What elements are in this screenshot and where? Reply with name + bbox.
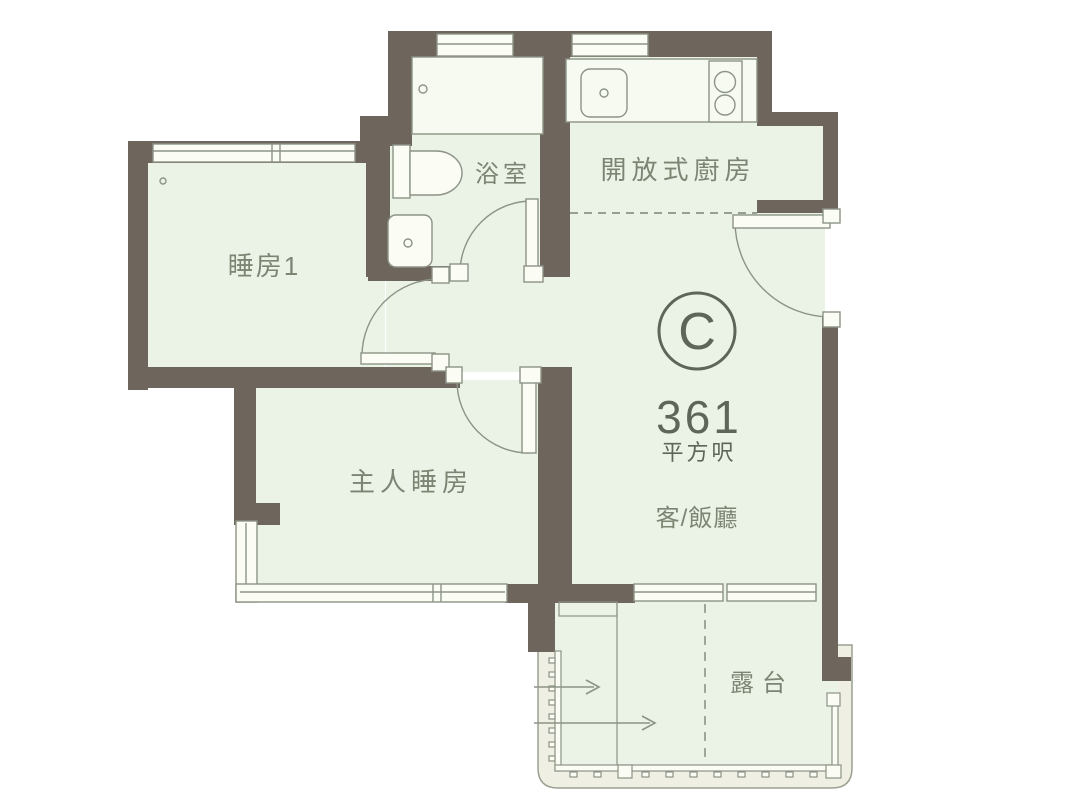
label-living-dining: 客/飯廳 [656,505,739,532]
stove-icon [709,61,742,122]
floor-plan-drawing: C 361 平方呎 睡房1 浴室 開放式廚房 主人睡房 客/飯廳 露台 [0,0,1080,810]
bedroom1-window [153,144,355,162]
unit-area-value: 361 [656,391,742,443]
kitchen-window [572,34,648,56]
shower-icon [412,57,543,134]
bathroom-window [437,34,513,56]
label-bathroom: 浴室 [475,161,531,188]
label-master-bedroom: 主人睡房 [349,467,473,497]
label-balcony: 露台 [730,670,794,697]
floor-plan: C 361 平方呎 睡房1 浴室 開放式廚房 主人睡房 客/飯廳 露台 [0,0,1080,810]
unit-badge-letter: C [678,303,716,361]
label-bedroom1: 睡房1 [228,251,300,281]
washbasin-icon [388,215,432,267]
room-entry-nook-floor [770,121,825,603]
unit-area-unit: 平方呎 [661,440,736,465]
room-balcony-floor [555,597,838,771]
label-open-kitchen: 開放式廚房 [600,155,755,185]
